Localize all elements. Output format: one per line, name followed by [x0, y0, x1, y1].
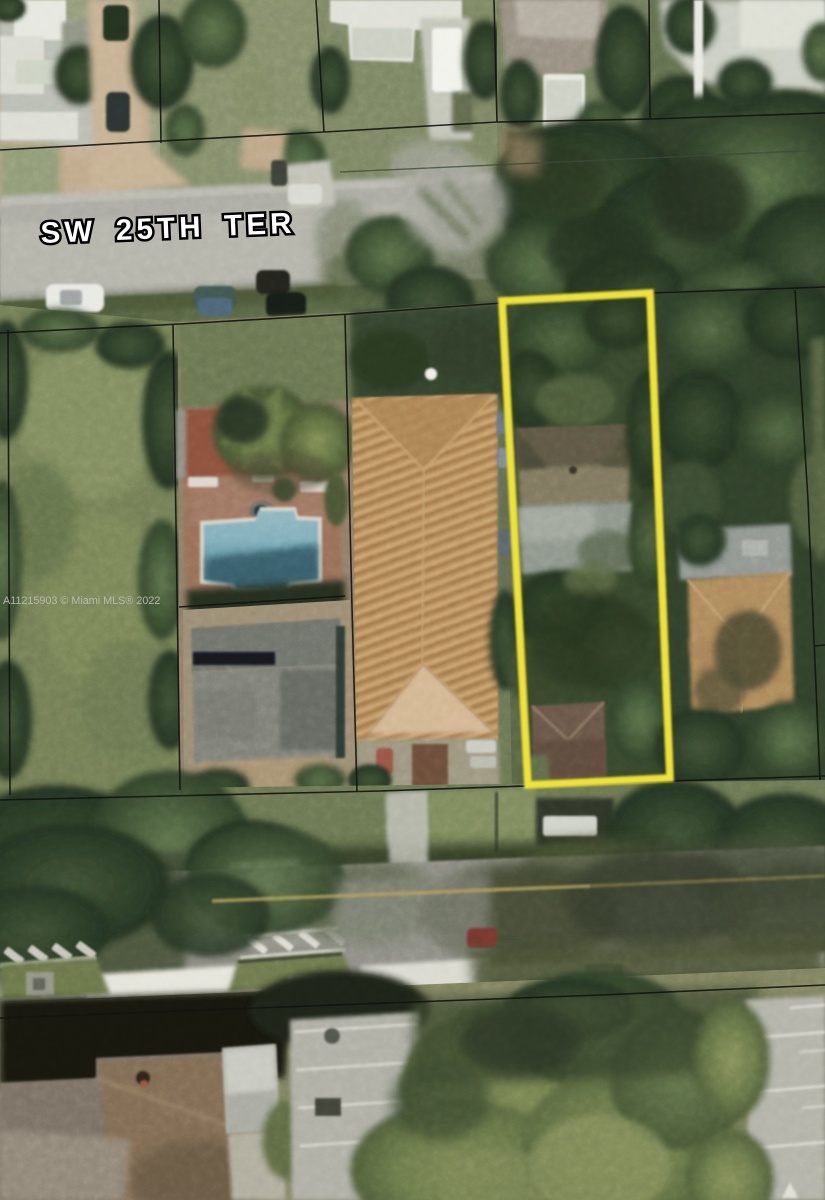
svg-text:A11215903 © Miami MLS® 2022: A11215903 © Miami MLS® 2022 [3, 595, 160, 607]
